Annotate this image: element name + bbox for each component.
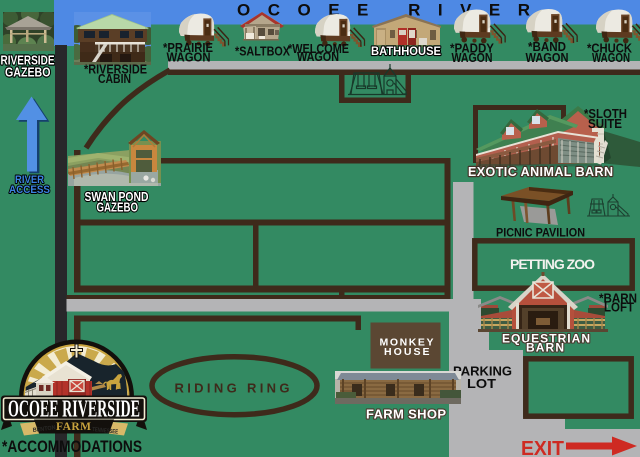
svg-text:OCOEE RIVERSIDE: OCOEE RIVERSIDE <box>8 397 140 423</box>
svg-text:WAGON: WAGON <box>452 51 493 65</box>
svg-text:EXOTIC ANIMAL BARN: EXOTIC ANIMAL BARN <box>468 165 613 179</box>
svg-text:ACCESS: ACCESS <box>9 184 50 196</box>
svg-text:LOT: LOT <box>467 376 496 391</box>
svg-text:PICNIC PAVILION: PICNIC PAVILION <box>496 226 585 240</box>
svg-text:BATHHOUSE: BATHHOUSE <box>371 44 441 58</box>
svg-text:PETTING ZOO: PETTING ZOO <box>510 256 595 272</box>
svg-text:FARM SHOP: FARM SHOP <box>366 407 446 422</box>
svg-text:WAGON: WAGON <box>526 51 569 65</box>
svg-text:WAGON: WAGON <box>297 50 339 64</box>
svg-text:LOFT: LOFT <box>604 301 634 315</box>
svg-text:SUITE: SUITE <box>588 117 622 131</box>
svg-text:*ACCOMMODATIONS: *ACCOMMODATIONS <box>2 438 142 456</box>
svg-text:*SALTBOX: *SALTBOX <box>235 45 291 59</box>
svg-text:HOUSE: HOUSE <box>384 346 430 358</box>
svg-text:WAGON: WAGON <box>592 51 630 65</box>
svg-text:BARN: BARN <box>526 341 564 355</box>
svg-text:WAGON: WAGON <box>167 51 211 65</box>
svg-text:GAZEBO: GAZEBO <box>97 201 139 215</box>
svg-text:EXIT: EXIT <box>521 438 564 457</box>
svg-text:FARM: FARM <box>56 421 91 433</box>
svg-text:GAZEBO: GAZEBO <box>5 65 51 80</box>
svg-text:CABIN: CABIN <box>98 72 131 86</box>
